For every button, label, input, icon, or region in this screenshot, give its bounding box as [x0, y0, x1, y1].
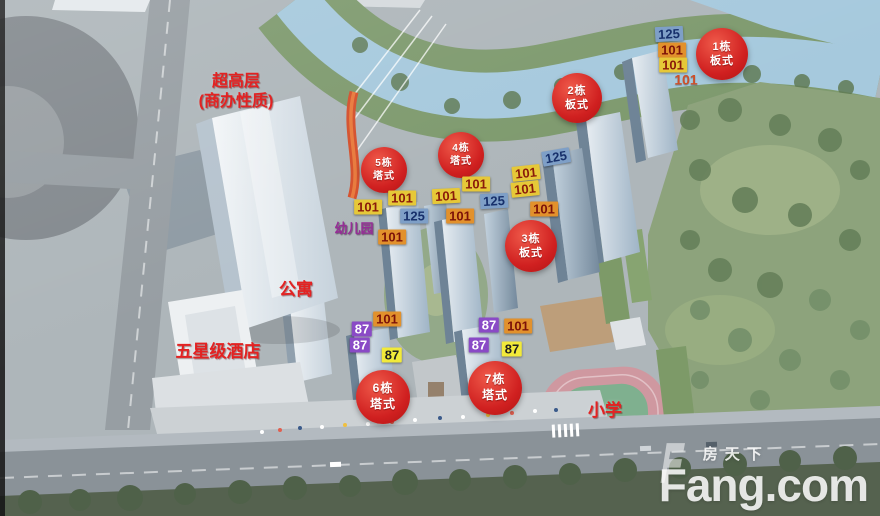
unit-size-tag: 125: [655, 26, 683, 42]
building-badge-text: 5栋: [375, 157, 393, 170]
apartment-label-line: 公寓: [279, 280, 313, 301]
building-badge-1: 1栋板式: [696, 28, 748, 80]
apartment-label: 公寓: [279, 280, 313, 301]
building-badge-6: 6栋塔式: [356, 370, 410, 424]
primary-school-label-line: 小学: [588, 401, 622, 422]
watermark: 房天下 Fang.com: [659, 443, 868, 508]
watermark-site-domain: Fang.com: [659, 464, 868, 508]
building-badge-2: 2栋板式: [552, 73, 602, 123]
building-badge-text: 板式: [565, 98, 589, 112]
building-badge-text: 塔式: [370, 397, 396, 413]
building-badge-text: 塔式: [373, 170, 395, 183]
unit-size-tag: 101: [504, 319, 532, 334]
unit-size-tag: 87: [382, 348, 402, 363]
building-badge-text: 1栋: [712, 40, 731, 54]
annotation-layer: 1栋板式2栋板式3栋板式4栋塔式5栋塔式6栋塔式7栋塔式125101101101…: [0, 0, 880, 516]
unit-size-tag: 101: [354, 200, 382, 215]
unit-size-tag: 101: [658, 43, 686, 58]
five-star-hotel-label: 五星级酒店: [176, 342, 261, 363]
super-highrise-label: 超高层(商办性质): [199, 72, 274, 111]
unit-size-tag: 101: [446, 209, 474, 224]
unit-size-tag: 101: [530, 202, 558, 217]
super-highrise-label-line: (商办性质): [199, 92, 274, 112]
aerial-site-plan: 1栋板式2栋板式3栋板式4栋塔式5栋塔式6栋塔式7栋塔式125101101101…: [0, 0, 880, 516]
building-badge-text: 6栋: [373, 381, 394, 397]
super-highrise-label-line: 超高层: [199, 72, 274, 92]
building-badge-text: 7栋: [485, 372, 506, 388]
unit-size-tag: 101: [462, 177, 490, 192]
unit-size-tag: 101: [388, 191, 416, 206]
kindergarten-label: 幼儿园: [334, 221, 373, 237]
unit-size-tag: 101: [373, 312, 401, 327]
unit-size-tag: 87: [502, 342, 522, 357]
unit-size-tag: 101: [378, 230, 406, 245]
kindergarten-label-line: 幼儿园: [334, 221, 373, 237]
unit-size-tag: 101: [432, 188, 460, 204]
unit-size-tag: 125: [480, 193, 508, 209]
building-badge-text: 4栋: [452, 142, 470, 155]
unit-size-tag: 125: [541, 147, 571, 167]
building-badge-3: 3栋板式: [505, 220, 557, 272]
unit-size-tag: 87: [469, 338, 489, 353]
unit-size-tag: 87: [352, 322, 372, 337]
unit-size-tag: 87: [350, 338, 370, 353]
five-star-hotel-label-line: 五星级酒店: [176, 342, 261, 363]
unit-size-tag: 87: [479, 318, 499, 333]
building-badge-text: 塔式: [482, 388, 508, 404]
building-badge-7: 7栋塔式: [468, 361, 522, 415]
building-badge-text: 板式: [519, 246, 543, 260]
building-badge-text: 板式: [710, 54, 734, 68]
unit-size-tag: 101: [510, 180, 539, 198]
unit-size-tag: 101: [671, 73, 700, 88]
building-badge-text: 塔式: [450, 155, 472, 168]
unit-size-tag: 125: [400, 209, 428, 224]
primary-school-label: 小学: [588, 401, 622, 422]
building-badge-text: 3栋: [521, 232, 540, 246]
unit-size-tag: 101: [659, 58, 687, 73]
fang-logo-icon: [659, 443, 685, 483]
building-badge-4: 4栋塔式: [438, 132, 484, 178]
building-badge-5: 5栋塔式: [361, 147, 407, 193]
building-badge-text: 2栋: [567, 84, 586, 98]
